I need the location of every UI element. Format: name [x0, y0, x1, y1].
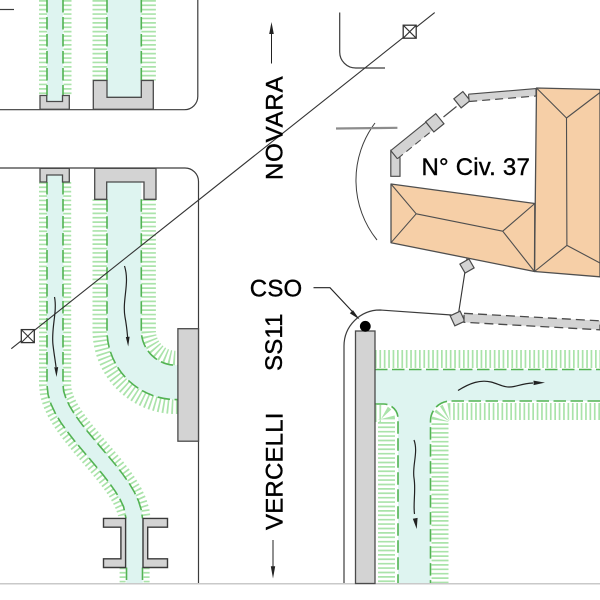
svg-text:NOVARA: NOVARA	[262, 76, 289, 180]
svg-text:CSO: CSO	[250, 276, 303, 303]
svg-text:N° Civ. 37: N° Civ. 37	[422, 154, 531, 181]
svg-text:VERCELLI: VERCELLI	[261, 412, 288, 530]
svg-text:SS11: SS11	[261, 313, 288, 371]
